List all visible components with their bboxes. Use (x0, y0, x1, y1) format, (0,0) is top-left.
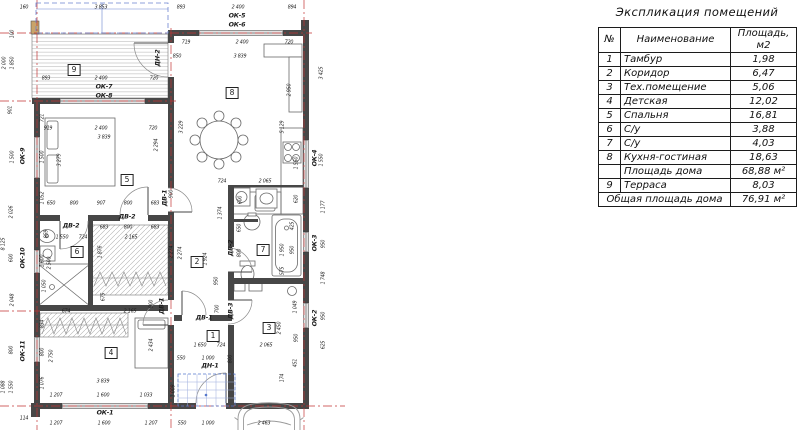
room-number: 5 (121, 174, 134, 186)
row-name: Детская (621, 95, 731, 109)
dimension-label: 683 (100, 226, 109, 231)
plan-labels-layer: 985627413ОК-5ОК-6ОК-7ОК-8ОК-9ОК-10ОК-11О… (0, 0, 560, 430)
door-label: ДВ-1 (196, 315, 213, 322)
window-label: ОК-9 (20, 148, 27, 165)
table-header-row: № Наименование Площадь, м2 (599, 28, 797, 53)
dimension-label: 1 088 (2, 381, 7, 394)
table-row: Площадь дома68,88 м² (599, 165, 797, 179)
dimension-label: 100 (11, 30, 16, 39)
door-label: ДВ-1 (162, 190, 169, 207)
dimension-label: 2 065 (260, 344, 273, 349)
dimension-label: 683 (151, 226, 160, 231)
row-name: Терраса (621, 179, 731, 193)
row-num: 9 (599, 179, 621, 193)
dimension-label: 2 400 (236, 41, 249, 46)
dimension-label: 1 052 (41, 192, 46, 205)
dimension-label: 1 550 (10, 381, 15, 394)
dimension-label: 724 (79, 236, 88, 241)
dimension-label: 1 924 (204, 253, 209, 266)
dimension-label: 683 (151, 202, 160, 207)
table-row: 5Спальня16,81 (599, 109, 797, 123)
dimension-label: 3 853 (95, 6, 108, 11)
row-area: 12,02 (731, 95, 797, 109)
row-num: 7 (599, 137, 621, 151)
table-row: 2Коридор6,47 (599, 67, 797, 81)
room-number: 2 (191, 256, 204, 268)
door-label: ДВ-2 (228, 240, 235, 257)
room-number: 4 (105, 347, 118, 359)
window-label: ОК-1 (97, 410, 114, 417)
dimension-label: 2 000 (3, 57, 8, 70)
explication-block: Экспликация помещений № Наименование Пло… (598, 5, 796, 207)
dimension-label: 1 207 (50, 422, 63, 427)
dimension-label: 1 600 (41, 255, 46, 268)
dimension-label: 800 (229, 355, 234, 364)
dimension-label: 1 550 (56, 236, 69, 241)
row-area: 16,81 (731, 109, 797, 123)
table-row: 8Кухня-гостиная18,63 (599, 151, 797, 165)
dimension-label: 2 165 (125, 236, 138, 241)
dimension-label: 893 (177, 6, 186, 11)
dimension-label: 2 048 (11, 294, 16, 307)
dimension-label: 2 750 (50, 350, 55, 363)
row-num: 6 (599, 123, 621, 137)
row-num: 3 (599, 81, 621, 95)
dimension-label: 2 500 (48, 257, 53, 270)
dimension-label: 425 (291, 222, 296, 231)
dimension-label: 1 207 (145, 422, 158, 427)
dimension-label: 174 (281, 374, 286, 383)
table-row: 6С/у3,88 (599, 123, 797, 137)
row-name: Спальня (621, 109, 731, 123)
dimension-label: 1 049 (294, 301, 299, 314)
dimension-label: 719 (182, 41, 191, 46)
dimension-label: 2 950 (288, 84, 293, 97)
dimension-label: 1 076 (41, 377, 46, 390)
dimension-label: 900 (170, 190, 175, 199)
dimension-label: 2 400 (232, 6, 245, 11)
dimension-label: 800 (41, 348, 46, 357)
door-label: ДН-2 (155, 49, 162, 66)
door-label: ДВ-3 (228, 303, 235, 320)
dimension-label: 1 850 (11, 57, 16, 70)
dimension-label: 1 009 (172, 385, 177, 398)
dimension-label: 650 (47, 202, 56, 207)
dimension-label: 919 (44, 127, 53, 132)
dimension-label: 2 274 (170, 246, 175, 259)
dimension-label: 2 400 (95, 77, 108, 82)
dimension-label: 720 (150, 77, 159, 82)
dimension-label: 2 065 (259, 180, 272, 185)
dimension-label: 950 (322, 240, 327, 249)
row-area: 4,03 (731, 137, 797, 151)
row-name: Коридор (621, 67, 731, 81)
door-label: ДВ-1 (159, 298, 166, 315)
row-num: 5 (599, 109, 621, 123)
dimension-label: 950 (215, 277, 220, 286)
row-area: 76,91 м² (731, 193, 797, 207)
dimension-label: 1 600 (97, 394, 110, 399)
dimension-label: 800 (70, 202, 79, 207)
dimension-label: 2 165 (124, 310, 137, 315)
row-num: 4 (599, 95, 621, 109)
dimension-label: 650 (238, 224, 243, 233)
row-area: 18,63 (731, 151, 797, 165)
dimension-label: 800 (124, 202, 133, 207)
table-row: Общая площадь дома76,91 м² (599, 193, 797, 207)
row-name: С/у (621, 123, 731, 137)
dimension-label: 893 (42, 77, 51, 82)
dimension-label: 3 839 (234, 55, 247, 60)
dimension-label: 907 (97, 202, 106, 207)
dimension-label: 850 (173, 55, 182, 60)
row-name: Тех.помещение (621, 81, 731, 95)
dimension-label: 1 550 (320, 154, 325, 167)
window-label: ОК-7 (96, 84, 113, 91)
dimension-label: 1 000 (202, 357, 215, 362)
room-number: 3 (263, 322, 276, 334)
row-name: Кухня-гостиная (621, 151, 731, 165)
explication-table: № Наименование Площадь, м2 1Тамбур1,982К… (598, 27, 797, 207)
dimension-label: 2 450 (278, 322, 283, 335)
dimension-label: 114 (20, 417, 29, 422)
dimension-label: 3 425 (320, 67, 325, 80)
table-row: 4Детская12,02 (599, 95, 797, 109)
dimension-label: 550 (178, 422, 187, 427)
dimension-label: 1 950 (281, 244, 286, 257)
dimension-label: 1 550 (295, 157, 300, 170)
dimension-label: 2 434 (150, 339, 155, 352)
window-label: ОК-5 (229, 13, 246, 20)
window-label: ОК-6 (229, 22, 246, 29)
table-row: 3Тех.помещение5,06 (599, 81, 797, 95)
dimension-label: 1 748 (322, 272, 327, 285)
dimension-label: 451 (294, 359, 299, 368)
dimension-label: 550 (177, 357, 186, 362)
row-num: 8 (599, 151, 621, 165)
dimension-label: 1 000 (202, 422, 215, 427)
dimension-label: 1 600 (98, 422, 111, 427)
dimension-label: 800 (238, 249, 243, 258)
window-label: ОК-2 (312, 310, 319, 327)
dimension-label: 1 500 (11, 151, 16, 164)
dimension-label: 724 (218, 180, 227, 185)
dimension-label: 600 (10, 254, 15, 263)
table-row: 7С/у4,03 (599, 137, 797, 151)
dimension-label: 620 (295, 195, 300, 204)
dimension-label: 575 (281, 267, 286, 276)
explication-table-body: 1Тамбур1,982Коридор6,473Тех.помещение5,0… (599, 53, 797, 207)
window-label: ОК-8 (96, 93, 113, 100)
room-number: 7 (257, 244, 270, 256)
dimension-label: 720 (285, 41, 294, 46)
door-label: ДН-1 (201, 363, 218, 370)
dimension-label: 674 (62, 310, 71, 315)
table-title: Экспликация помещений (598, 5, 796, 19)
dimension-label: 1 207 (50, 394, 63, 399)
dimension-label: 1 374 (219, 207, 224, 220)
dimension-label: 2 026 (10, 206, 15, 219)
dimension-label: 5 129 (281, 121, 286, 134)
room-number: 8 (226, 87, 239, 99)
dimension-label: 834 (41, 320, 46, 329)
dimension-label: 901 (9, 106, 14, 115)
door-label: ДВ-2 (119, 214, 136, 221)
window-label: ОК-4 (312, 150, 319, 167)
dimension-label: 2 400 (95, 127, 108, 132)
dimension-label: 724 (217, 344, 226, 349)
header-name: Наименование (621, 28, 731, 53)
dimension-label: 3 279 (58, 154, 63, 167)
dimension-label: 1 050 (43, 280, 48, 293)
row-num: 2 (599, 67, 621, 81)
row-name: Площадь дома (621, 165, 731, 179)
table-row: 9Терраса8,03 (599, 179, 797, 193)
row-area: 1,98 (731, 53, 797, 67)
row-area: 6,47 (731, 67, 797, 81)
dimension-label: 3 229 (180, 121, 185, 134)
dimension-label: 950 (291, 246, 296, 255)
dimension-label: 8 125 (2, 238, 7, 251)
dimension-label: 900 (150, 300, 155, 309)
dimension-label: 894 (288, 6, 297, 11)
dimension-label: 2 274 (179, 247, 184, 260)
row-name: Общая площадь дома (599, 193, 731, 207)
dimension-label: 721 (41, 114, 46, 123)
row-name: Тамбур (621, 53, 731, 67)
row-num (599, 165, 621, 179)
window-label: ОК-3 (312, 235, 319, 252)
row-num: 1 (599, 53, 621, 67)
dimension-label: 1 650 (194, 344, 207, 349)
dimension-label: 2 463 (258, 422, 271, 427)
floor-plan-page: 985627413ОК-5ОК-6ОК-7ОК-8ОК-9ОК-10ОК-11О… (0, 0, 800, 430)
dimension-label: 600 (239, 196, 244, 205)
room-number: 6 (71, 246, 84, 258)
dimension-label: 720 (149, 127, 158, 132)
header-area: Площадь, м2 (731, 28, 797, 53)
dimension-label: 2 294 (155, 139, 160, 152)
dimension-label: 950 (322, 312, 327, 321)
row-area: 68,88 м² (731, 165, 797, 179)
row-area: 3,88 (731, 123, 797, 137)
row-area: 8,03 (731, 179, 797, 193)
dimension-label: 675 (102, 293, 107, 302)
dimension-label: 3 839 (98, 136, 111, 141)
table-row: 1Тамбур1,98 (599, 53, 797, 67)
dimension-label: 950 (295, 334, 300, 343)
door-label: ДВ-2 (63, 223, 80, 230)
dimension-label: 1 876 (99, 246, 104, 259)
row-name: С/у (621, 137, 731, 151)
room-number: 1 (207, 330, 220, 342)
dimension-label: 160 (20, 6, 29, 11)
dimension-label: 1 033 (140, 394, 153, 399)
row-area: 5,06 (731, 81, 797, 95)
dimension-label: 800 (10, 346, 15, 355)
dimension-label: 1 500 (41, 151, 46, 164)
room-number: 9 (68, 64, 81, 76)
header-num: № (599, 28, 621, 53)
dimension-label: 859 (45, 230, 50, 239)
dimension-label: 1 177 (322, 201, 327, 214)
dimension-label: 3 839 (97, 380, 110, 385)
window-label: ОК-10 (20, 248, 27, 269)
window-label: ОК-11 (20, 341, 27, 362)
dimension-label: 800 (124, 226, 133, 231)
dimension-label: 700 (216, 305, 221, 314)
dimension-label: 625 (322, 341, 327, 350)
